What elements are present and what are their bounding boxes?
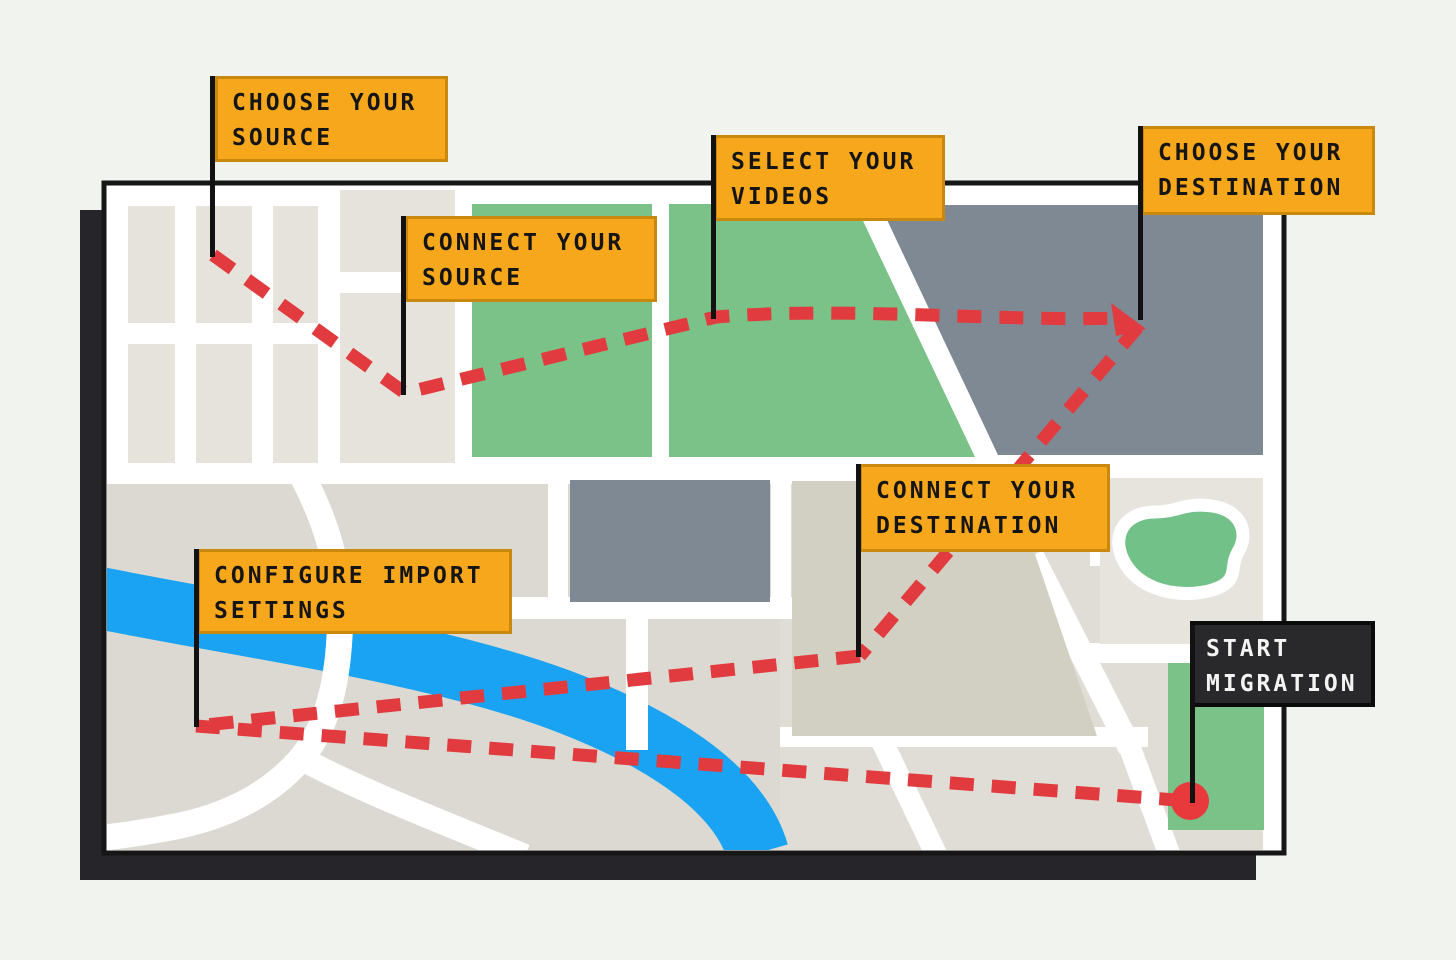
- step-flag-choose-destination: CHOOSE YOUR DESTINATION: [1141, 126, 1375, 215]
- flag-pole-connect-source: [401, 216, 406, 395]
- migration-journey-illustration: CHOOSE YOUR SOURCE CONNECT YOUR SOURCE S…: [0, 0, 1456, 960]
- step-flag-connect-destination: CONNECT YOUR DESTINATION: [859, 464, 1110, 552]
- step-flag-configure-import-settings: CONFIGURE IMPORT SETTINGS: [197, 549, 512, 634]
- step-flag-choose-source: CHOOSE YOUR SOURCE: [215, 76, 448, 162]
- flag-pole-configure-import-settings: [194, 549, 199, 727]
- flag-pole-select-videos: [711, 135, 716, 319]
- step-flag-select-videos: SELECT YOUR VIDEOS: [714, 135, 945, 221]
- flag-pole-choose-source: [210, 76, 215, 257]
- pond: [1119, 505, 1243, 593]
- flag-pole-choose-destination: [1138, 126, 1143, 320]
- flag-pole-start-migration: [1190, 625, 1195, 803]
- flag-pole-connect-destination: [856, 464, 861, 657]
- step-flag-start-migration: START MIGRATION: [1190, 621, 1375, 707]
- block-slate-center: [570, 480, 770, 602]
- step-flag-connect-source: CONNECT YOUR SOURCE: [405, 216, 657, 302]
